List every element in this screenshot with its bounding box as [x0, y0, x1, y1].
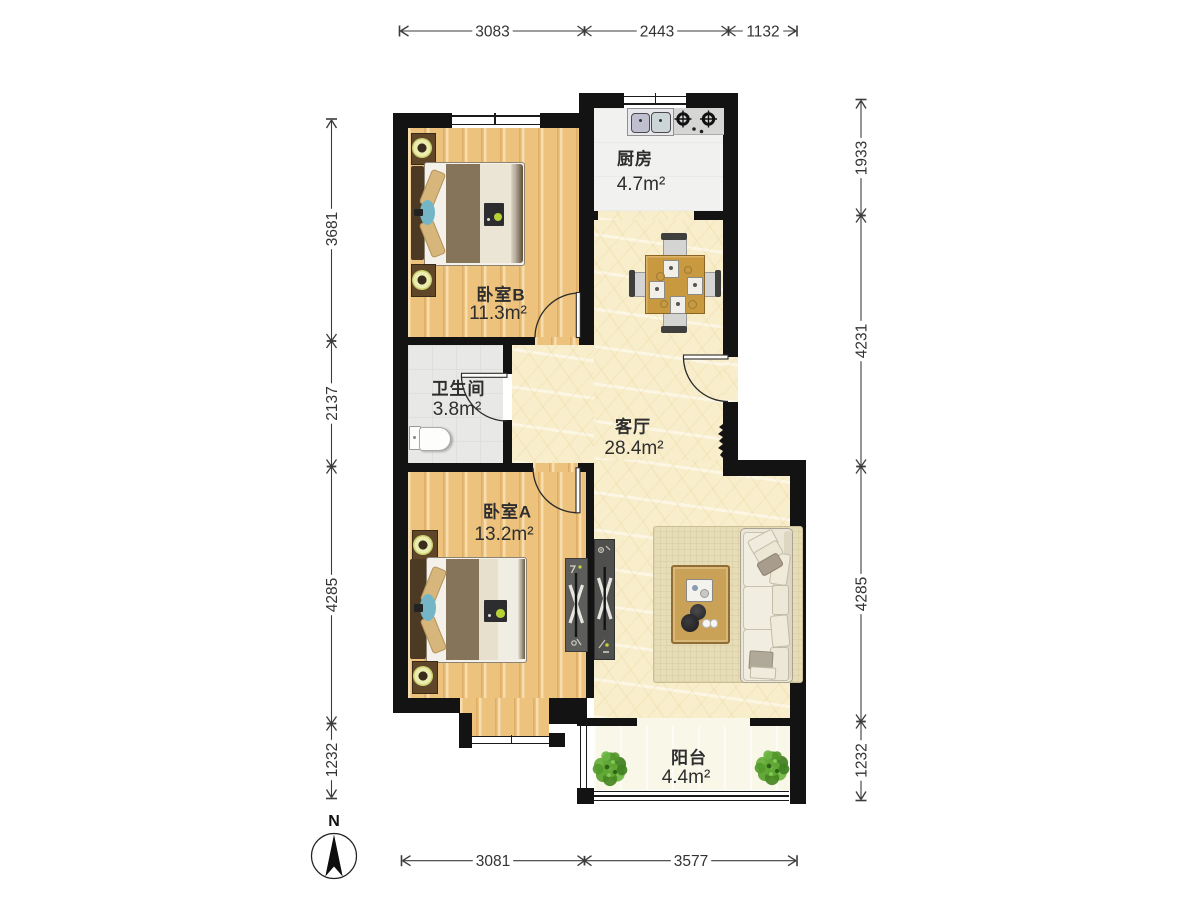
svg-text:3081: 3081	[476, 853, 510, 870]
svg-text:1132: 1132	[746, 24, 779, 41]
svg-text:4285: 4285	[324, 578, 341, 612]
svg-text:1232: 1232	[854, 743, 871, 777]
svg-text:1933: 1933	[854, 141, 871, 175]
svg-text:2443: 2443	[640, 24, 674, 41]
svg-text:3577: 3577	[674, 853, 708, 870]
svg-text:4285: 4285	[854, 577, 871, 611]
svg-text:3681: 3681	[324, 212, 341, 246]
svg-text:3083: 3083	[475, 24, 509, 41]
svg-text:4231: 4231	[854, 324, 871, 358]
svg-text:2137: 2137	[324, 386, 341, 420]
svg-text:1232: 1232	[324, 743, 341, 777]
